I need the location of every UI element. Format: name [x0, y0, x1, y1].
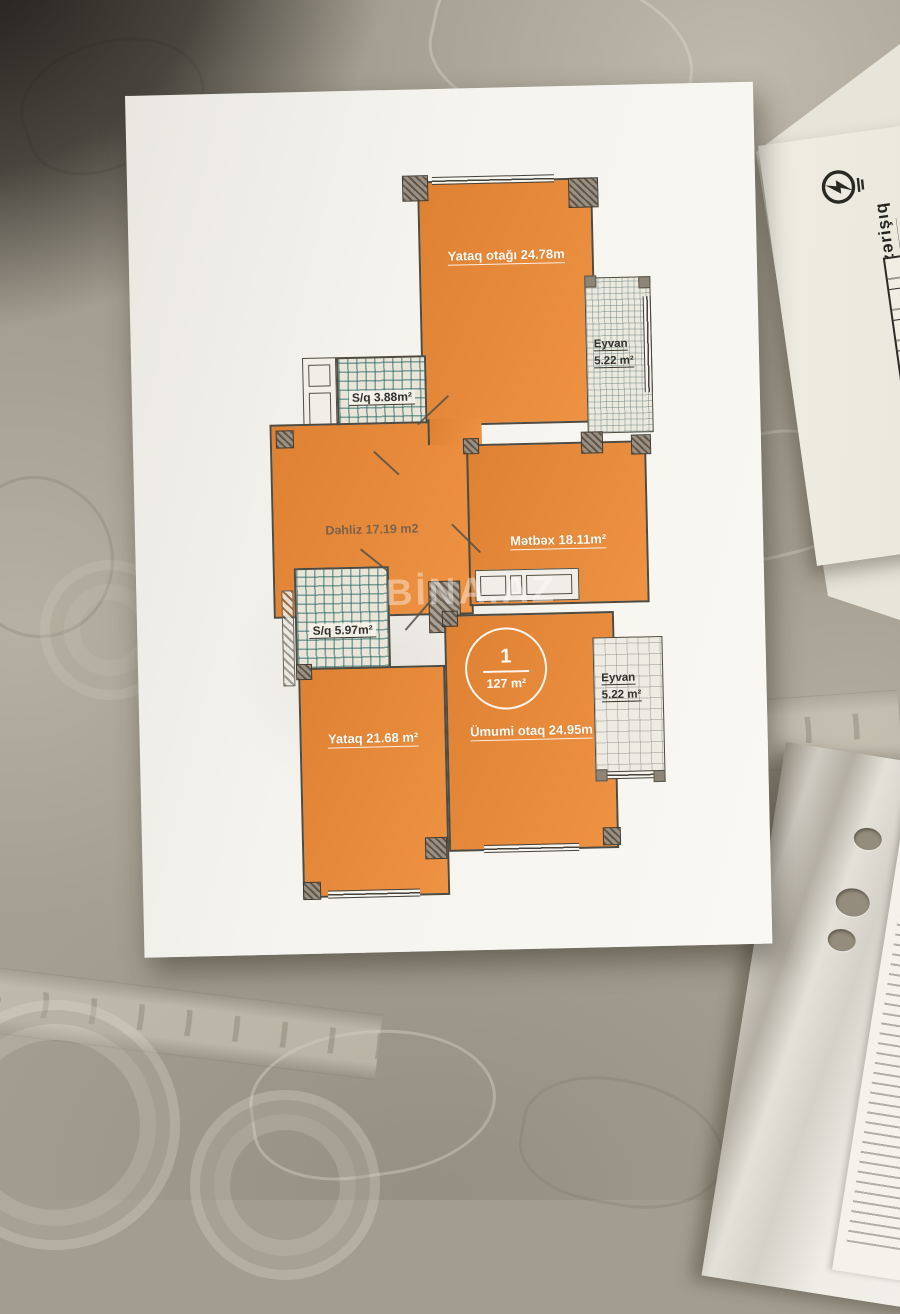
room-label: Yataq 21.68 m² — [328, 730, 419, 749]
wall-pier — [581, 431, 603, 453]
room-label: Eyvan — [601, 672, 635, 686]
binder-hole — [834, 886, 872, 919]
wall-pier — [276, 430, 294, 448]
room-balcony-bottom: Eyvan 5.22 m² — [592, 636, 665, 778]
watermark-bina-az: BİNA.AZ — [331, 567, 612, 615]
room-area: 5.22 m² — [602, 689, 642, 703]
room-label: S/q 3.88m² — [349, 390, 415, 406]
wall-pier — [584, 275, 596, 287]
floor-plan-sheet: Yataq otağı 24.78m Eyvan 5.22 m² S/q 3.8… — [125, 82, 772, 958]
unit-number: 1 — [500, 647, 512, 667]
lace-pattern — [511, 1063, 736, 1223]
window-symbol — [484, 843, 579, 853]
room-label: S/q 5.97m² — [310, 622, 376, 638]
room-label: Yataq otağı 24.78m — [448, 246, 565, 266]
room-label: Ümumi otaq 24.95m — [470, 722, 593, 742]
badge-divider — [483, 670, 529, 673]
room-label: Eyvan — [594, 338, 628, 352]
wall-pier — [631, 434, 651, 454]
wall-pier — [402, 175, 429, 202]
form-table — [883, 224, 900, 460]
unit-area: 127 m² — [486, 676, 526, 691]
window-symbol — [602, 770, 660, 779]
room-label: Dəhliz 17.19 m2 — [274, 520, 470, 538]
receipt-paper — [832, 796, 900, 1289]
azerisiq-logo-icon — [815, 161, 872, 212]
binder-hole — [852, 826, 883, 852]
wall-pier — [296, 664, 312, 680]
wall-pier — [595, 769, 607, 781]
wall-pier — [425, 837, 447, 859]
wall-pier — [568, 177, 599, 208]
window-symbol — [643, 296, 653, 392]
room-label: Mətbəx 18.11m² — [510, 531, 606, 550]
wall-pier — [303, 882, 321, 900]
unit-number-badge: 1 127 m² — [464, 627, 548, 711]
wall-pier — [653, 770, 665, 782]
room-bedroom-bottom: Yataq 21.68 m² — [298, 665, 450, 898]
cabinet-box — [308, 364, 330, 386]
receipt-text-lines — [847, 916, 900, 1255]
lace-medallion — [190, 1090, 380, 1280]
window-symbol — [328, 889, 420, 899]
wall-pier — [442, 611, 458, 627]
wall-hatch — [281, 590, 295, 686]
wall-pier — [638, 276, 650, 288]
utility-brand-name: azərişıq –––––––––––––––– — [863, 142, 900, 274]
wall-pier — [603, 827, 621, 845]
room-area: 5.22 m² — [594, 355, 634, 369]
wall-pier — [463, 438, 479, 454]
binder-hole — [826, 927, 857, 953]
room-bedroom-top: Yataq otağı 24.78m — [417, 177, 598, 426]
